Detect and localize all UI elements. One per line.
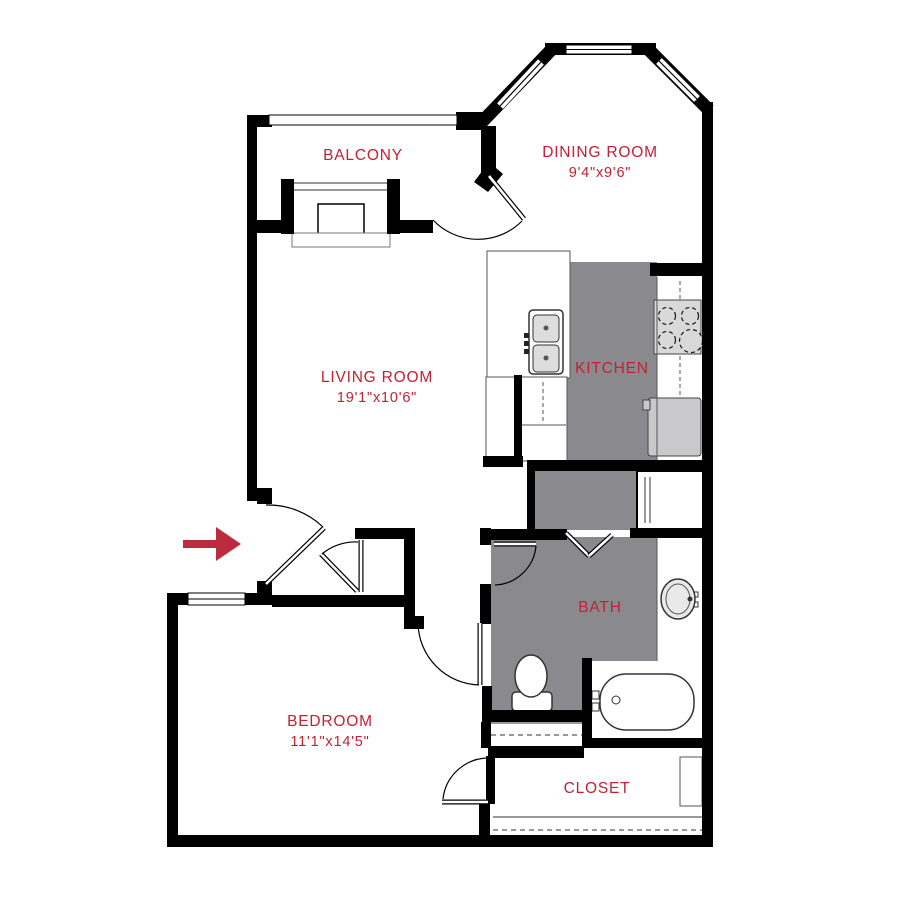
detail-line xyxy=(500,62,541,106)
wall xyxy=(481,722,491,748)
wall xyxy=(167,593,178,847)
door-leaf-core xyxy=(489,176,524,219)
fixture-ellipse xyxy=(544,326,549,331)
floor-area xyxy=(491,537,657,661)
floor-plan-canvas: BALCONYDINING ROOM9'4"x9'6"LIVING ROOM19… xyxy=(0,0,900,900)
detail-line xyxy=(659,61,697,99)
wall xyxy=(404,616,424,629)
fixture xyxy=(486,377,515,458)
room-label-bedroom: BEDROOM xyxy=(287,713,373,730)
wall xyxy=(480,584,491,624)
room-dims-living: 19'1"x10'6" xyxy=(337,390,417,406)
wall xyxy=(387,179,400,234)
fixture-ellipse xyxy=(682,308,699,325)
fixture-ellipse xyxy=(659,332,676,349)
room-label-closet: CLOSET xyxy=(564,780,631,797)
wall xyxy=(488,710,584,722)
wall xyxy=(257,488,272,504)
fixture xyxy=(592,691,599,699)
entry-arrow-icon xyxy=(183,540,216,548)
fixture-ellipse xyxy=(680,330,703,353)
wall xyxy=(486,756,495,804)
room-label-kitchen: KITCHEN xyxy=(575,360,649,377)
wall xyxy=(487,529,567,540)
wall xyxy=(630,528,704,538)
fixture xyxy=(292,233,390,247)
wall xyxy=(590,738,703,748)
wall xyxy=(702,102,713,847)
room-label-living: LIVING ROOM xyxy=(321,369,433,386)
wall xyxy=(272,595,405,607)
door-swing-arc xyxy=(433,220,522,239)
room-dims-bedroom: 11'1"x14'5" xyxy=(290,734,369,750)
entry-arrow-head-icon xyxy=(216,527,241,561)
wall xyxy=(483,456,523,467)
fixture xyxy=(637,471,703,529)
window-icon xyxy=(269,115,457,125)
wall xyxy=(488,746,584,758)
fixture xyxy=(600,674,694,730)
floor-area xyxy=(533,470,637,530)
wall xyxy=(167,593,188,605)
wall xyxy=(281,179,294,234)
fixture-ellipse xyxy=(515,655,547,697)
fixture xyxy=(524,349,529,354)
fixture xyxy=(592,703,599,711)
door-leaf-core xyxy=(321,554,357,591)
wall xyxy=(355,528,409,539)
room-label-balcony: BALCONY xyxy=(323,147,403,164)
wall xyxy=(456,112,485,130)
wall xyxy=(167,835,713,847)
wall xyxy=(480,528,491,545)
fixture xyxy=(524,341,529,346)
wall xyxy=(404,528,415,618)
fixture-ellipse xyxy=(688,597,693,602)
wall xyxy=(582,658,592,748)
door-swing-arc xyxy=(443,758,490,799)
room-dims-dining: 9'4"x9'6" xyxy=(569,165,632,181)
wall xyxy=(247,115,257,501)
door-swing-arc xyxy=(322,542,358,554)
wall xyxy=(650,263,702,276)
fixture xyxy=(680,757,702,806)
fixture xyxy=(524,333,529,338)
floor-plan-drawing: BALCONYDINING ROOM9'4"x9'6"LIVING ROOM19… xyxy=(0,0,900,900)
door-leaf-core xyxy=(266,528,324,584)
wall xyxy=(247,115,272,127)
wall xyxy=(527,460,535,532)
room-label-bath: BATH xyxy=(578,599,621,616)
wall xyxy=(514,375,522,461)
fixture xyxy=(648,398,701,456)
fixture xyxy=(521,377,567,461)
room-label-dining: DINING ROOM xyxy=(542,144,658,161)
fixture xyxy=(643,400,650,410)
door-swing-arc xyxy=(266,505,323,527)
wall xyxy=(527,460,703,471)
fixture-ellipse xyxy=(544,356,549,361)
fixture xyxy=(318,204,364,234)
wall xyxy=(479,803,490,837)
door-swing-arc xyxy=(418,623,479,685)
fixture-ellipse xyxy=(659,308,676,325)
